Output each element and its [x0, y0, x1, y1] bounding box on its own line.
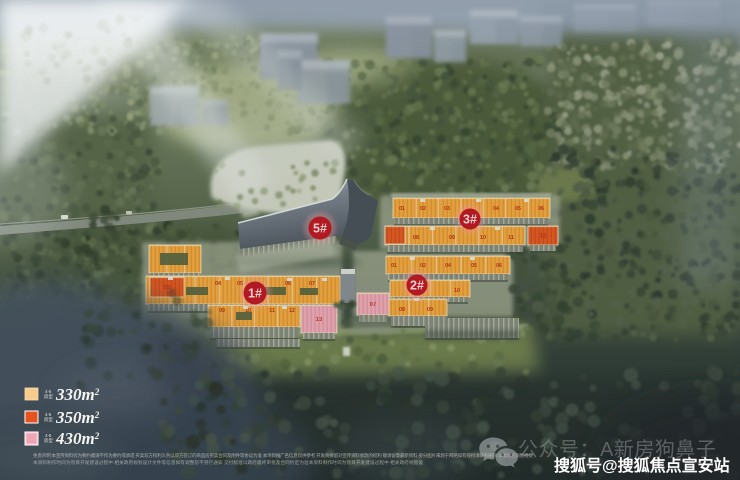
svg-text:房型: 房型: [44, 393, 53, 400]
svg-text:330m2: 330m2: [55, 385, 100, 404]
svg-text:430m2: 430m2: [55, 429, 100, 448]
svg-text:搜狐号@搜狐焦点宣安站: 搜狐号@搜狐焦点宣安站: [554, 456, 730, 475]
svg-text:本资料制作时间为项目开发建设过程中 相关政府规划设计文件等信: 本资料制作时间为项目开发建设过程中 相关政府规划设计文件等信息如有调整恕不另行通…: [33, 459, 423, 466]
svg-text:免责声明 本宣传资料仅为要约邀请不作为要约或承诺 买卖双方权: 免责声明 本宣传资料仅为要约邀请不作为要约或承诺 买卖双方权利义务以双方签订的商…: [33, 452, 533, 459]
svg-text:房型: 房型: [44, 416, 53, 423]
svg-text:房型: 房型: [44, 437, 53, 444]
svg-text:350m2: 350m2: [55, 408, 100, 427]
